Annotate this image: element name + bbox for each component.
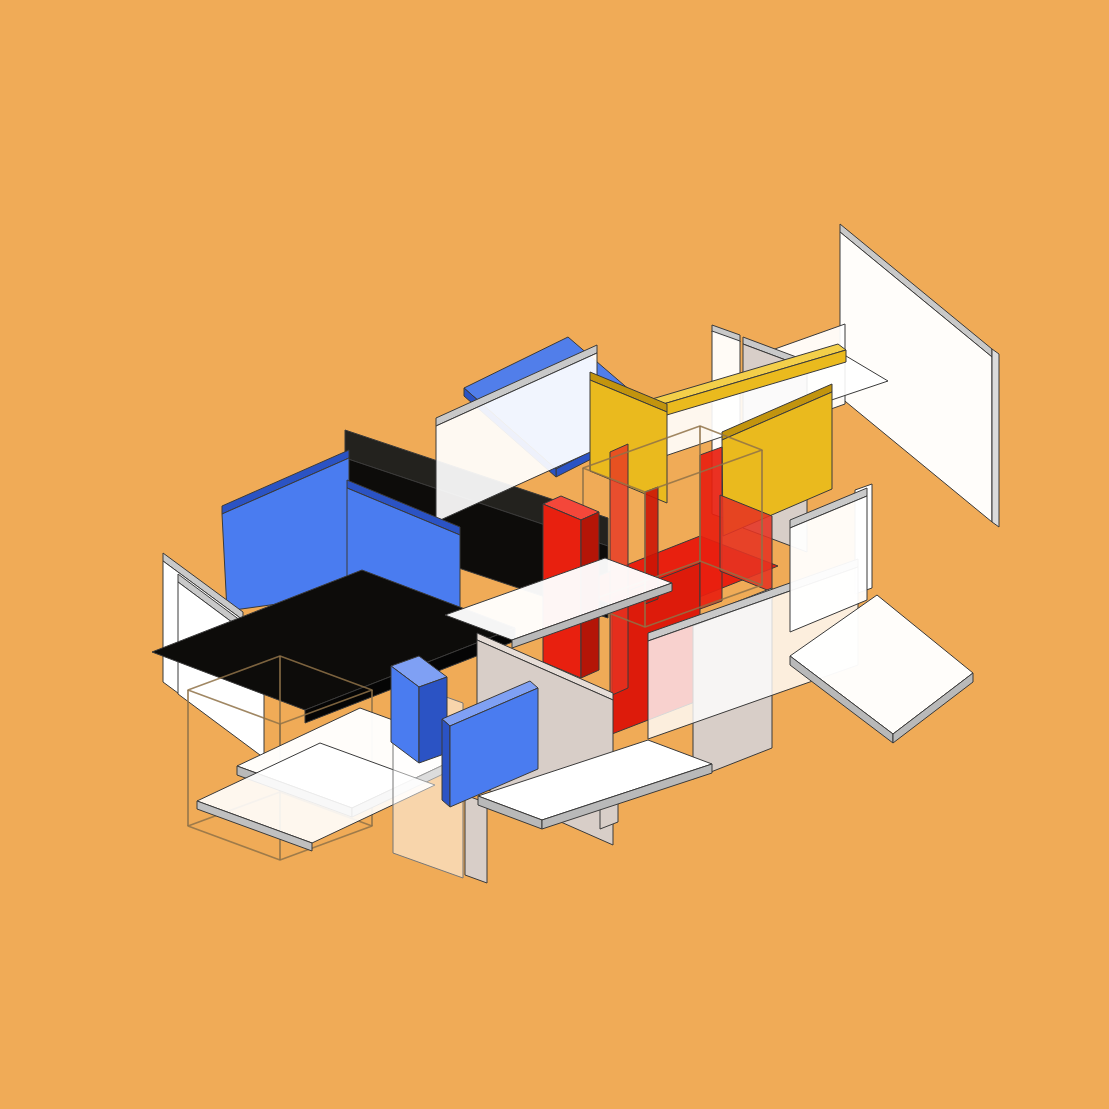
plane-topright-white-rightband: [992, 349, 999, 527]
scene-svg: [0, 0, 1109, 1109]
isometric-composition: [0, 0, 1109, 1109]
slab-blue-leftedge: [442, 719, 450, 807]
leg-taupe-left: [465, 795, 487, 883]
